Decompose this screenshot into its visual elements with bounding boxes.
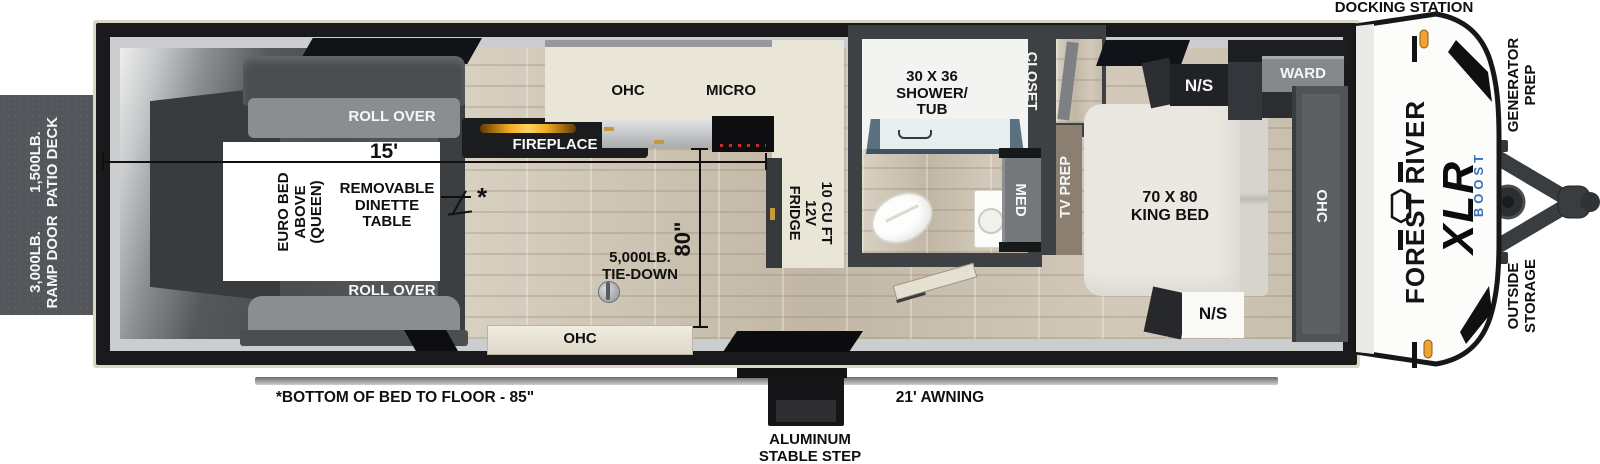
bed-pillows <box>1240 102 1268 296</box>
hall-ohc-label: OHC <box>520 330 640 348</box>
wardrobe-side-panel <box>1228 62 1262 120</box>
ramp-door-line2: RAMP DOOR <box>45 215 62 308</box>
awning-label: 21' AWNING <box>870 389 1010 406</box>
boost-text: BOOST <box>1471 151 1486 217</box>
fridge-handle <box>770 208 775 220</box>
euro-bed-label: EURO BED ABOVE (QUEEN) <box>273 157 329 267</box>
king-bed-line1: 70 X 80 <box>1142 189 1197 207</box>
forest-river-text: FOREST RIVER <box>1400 100 1430 304</box>
boost-logo: BOOST <box>1471 151 1486 217</box>
king-bed-line2: KING BED <box>1131 207 1209 225</box>
tv-prep-wall <box>1042 125 1056 255</box>
tie-down-line2: TIE-DOWN <box>602 267 678 284</box>
tie-down-label: 5,000LB. TIE-DOWN <box>575 250 705 283</box>
marker-light-top <box>1420 30 1428 48</box>
step-label: ALUMINUM STABLE STEP <box>730 433 890 464</box>
rv-floorplan: 1,500LB. PATIO DECK 3,000LB. RAMP DOOR R… <box>0 0 1600 464</box>
marker-light-bottom <box>1424 340 1432 358</box>
garage-length-label: 15' <box>334 141 434 163</box>
med-cabinet-bottom <box>999 242 1041 252</box>
microwave-label: MICRO <box>691 82 771 100</box>
outside-storage-line2: STORAGE <box>1523 259 1540 333</box>
shower-line2: SHOWER/ <box>896 86 968 103</box>
entry-step-tread <box>776 400 836 422</box>
kitchen-counter <box>545 40 775 122</box>
med-cabinet-label: MED <box>1011 168 1029 232</box>
kitchen-ohc-label: OHC <box>588 82 668 100</box>
tie-down-line1: 5,000LB. <box>609 250 671 267</box>
patio-deck-line1: 1,500LB. <box>28 131 45 193</box>
coupler-ball <box>1580 192 1600 212</box>
kitchen-corner-counter <box>772 40 844 158</box>
rollover-bottom-label: ROLL OVER <box>302 282 482 300</box>
shower-line3: TUB <box>917 102 948 119</box>
generator-prep-label: GENERATOR PREP <box>1505 30 1541 140</box>
cap-left-shade <box>1356 24 1374 354</box>
shower-line1: 30 X 36 <box>906 69 958 86</box>
refrigerator-label: 10 CU FT 12V FRIDGE <box>783 161 837 265</box>
bathroom-sink-bowl <box>978 208 1004 234</box>
wardrobe-label: WARD <box>1263 65 1343 83</box>
generator-prep-line1: GENERATOR <box>1506 38 1523 132</box>
fireplace-flame-glow <box>480 124 576 133</box>
fridge-line2: 12V <box>802 200 818 226</box>
entry-door <box>723 331 863 352</box>
tie-down-anchor-slot <box>606 282 610 300</box>
euro-bed-line2: ABOVE <box>293 185 310 238</box>
patio-deck-line2: PATIO DECK <box>45 117 62 207</box>
dimension-tick-left <box>102 153 104 170</box>
crest-dash-top <box>1398 162 1403 182</box>
king-bed-label: 70 X 80 KING BED <box>1100 188 1240 226</box>
dimension-tick-bottom <box>691 326 708 328</box>
cabinet-handle <box>654 140 664 144</box>
dinette-leader-line <box>441 196 471 198</box>
bed-height-note: *BOTTOM OF BED TO FLOOR - 85" <box>245 389 565 406</box>
shower-drain-handle <box>898 130 932 139</box>
dinette-line1: REMOVABLE <box>340 181 435 198</box>
bedroom-ohc-label: OHC <box>1312 178 1330 234</box>
euro-bed-line3: (QUEEN) <box>309 180 326 243</box>
fridge-line1: 10 CU FT <box>818 182 834 245</box>
fridge-line3: FRIDGE <box>786 186 802 241</box>
outside-storage-line1: OUTSIDE <box>1506 263 1523 330</box>
dinette-label: REMOVABLE DINETTE TABLE <box>327 180 447 232</box>
tv-prep-label: TV PREP <box>1057 147 1075 227</box>
outside-storage-label: OUTSIDE STORAGE <box>1505 241 1541 351</box>
euro-bed-line1: EURO BED <box>276 172 293 251</box>
shower-tub-label: 30 X 36 SHOWER/ TUB <box>857 68 1007 120</box>
nightstand-bottom-label: N/S <box>1183 305 1243 323</box>
dimension-tick-right <box>765 153 767 170</box>
dinette-line3: TABLE <box>363 214 412 231</box>
nightstand-top-label: N/S <box>1169 77 1229 95</box>
length-dimension-line <box>103 161 767 163</box>
ramp-door-line1: 3,000LB. <box>28 231 45 293</box>
ramp-door-label: 3,000LB. RAMP DOOR <box>27 202 63 322</box>
generator-prep-line2: PREP <box>1523 65 1540 106</box>
awning-bar <box>255 377 1278 385</box>
wordmark-dash-lower <box>1412 342 1417 368</box>
step-line2: STABLE STEP <box>759 449 861 464</box>
dinette-line2: DINETTE <box>355 198 419 215</box>
closet-label: CLOSET <box>1022 38 1040 124</box>
docking-station-label: DOCKING STATION <box>1314 0 1494 16</box>
front-cap: FOREST RIVER XLR BOOST <box>1340 10 1510 368</box>
dinette-note-asterisk: * <box>470 186 494 210</box>
wordmark-dash-upper <box>1412 36 1417 62</box>
med-cabinet-top <box>999 148 1041 158</box>
step-line1: ALUMINUM <box>769 432 851 449</box>
dimension-tick-top <box>691 148 708 150</box>
width-dimension-line <box>699 149 701 327</box>
cabinet-handle <box>604 127 614 131</box>
rollover-top-label: ROLL OVER <box>302 108 482 126</box>
cooktop-burner-lights <box>720 144 766 147</box>
crest-dash-bottom <box>1398 230 1403 250</box>
